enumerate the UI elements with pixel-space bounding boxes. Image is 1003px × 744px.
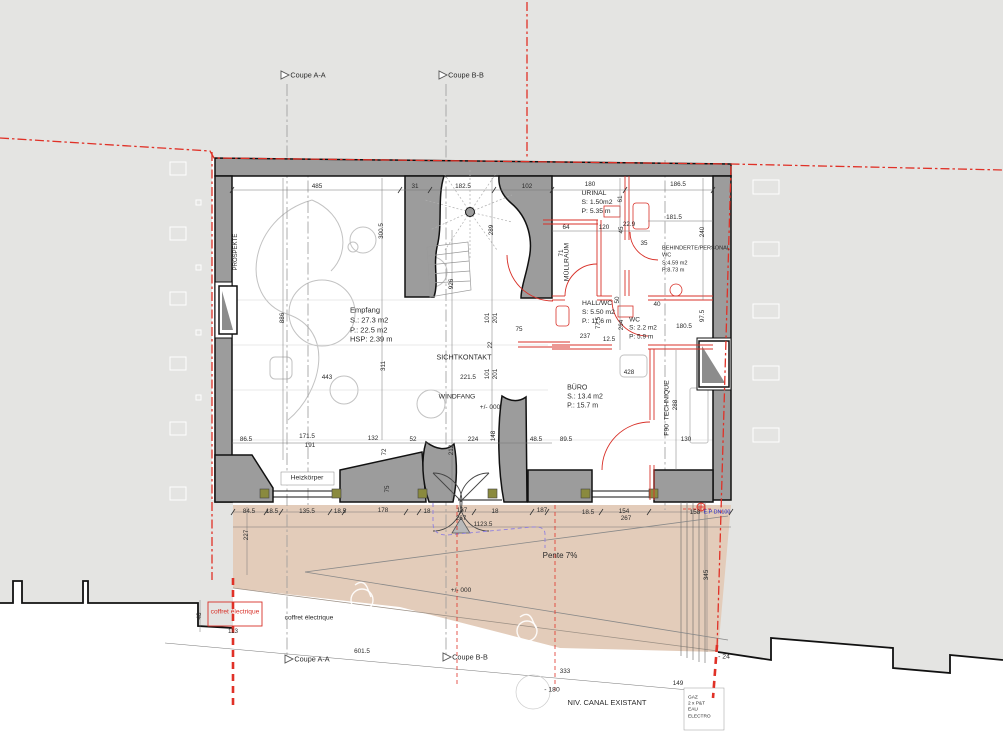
floor-plan-canvas: Empfang S.: 27.3 m2 P.: 22.5 m2 HSP: 2.3… [0, 0, 1003, 744]
dimension-label: 186.5 [670, 181, 686, 189]
dimension-label: 18 [491, 508, 498, 516]
dimension-label: 264 [618, 320, 626, 331]
dimension-label: 89.5 [560, 436, 572, 444]
dimension-label: 18.5 [334, 508, 346, 516]
dimension-label: 267 [621, 515, 632, 523]
dimension-label: 201 [492, 313, 500, 324]
dimension-label: 101 [484, 369, 492, 380]
label-level-entry: +/- 000 [480, 404, 500, 412]
dimension-label: 130 [681, 436, 692, 444]
dimension-label: 181.5 [666, 214, 682, 222]
dimension-label: 224 [468, 436, 479, 444]
dimension-label: 886 [279, 313, 287, 324]
label-pente: Pente 7% [543, 551, 578, 561]
label-heizkoerper: Heizkörper [291, 475, 324, 484]
dimension-label: 101 [484, 313, 492, 324]
dimension-label: 158 [690, 509, 701, 517]
dimension-label: 77.5 [595, 317, 603, 329]
dimension-label: 1123.5 [474, 521, 493, 529]
dimension-label: 18.5 [582, 509, 594, 517]
dimension-label: 154 [619, 508, 630, 516]
dimension-label: 71 [558, 249, 566, 256]
marker-coupe-aa-top: Coupe A-A [290, 70, 325, 79]
dimension-label: 84.5 [243, 508, 255, 516]
dimension-label: 180 [585, 181, 596, 189]
dimension-label: 61 [617, 195, 625, 202]
dimension-label: 72 [381, 448, 389, 455]
marker-coupe-bb-bottom: Coupe B-B [452, 652, 488, 661]
dimension-label: 135.5 [299, 508, 315, 516]
room-label-empfang: Empfang S.: 27.3 m2 P.: 22.5 m2 HSP: 2.3… [350, 306, 393, 345]
dimension-label: 187 [537, 507, 548, 515]
room-label-wc: WC S: 2.2 m2 P: 5.9 m [629, 316, 657, 341]
zone-label-windfang: WINDFANG [439, 394, 476, 403]
dimension-label: 18.5 [266, 508, 278, 516]
dimension-label: 97.5 [699, 310, 707, 322]
dimension-label: 237 [580, 333, 591, 341]
dimension-label: 240 [699, 227, 707, 238]
dimension-label: 113 [228, 628, 238, 636]
dimension-label: 22 [487, 341, 495, 348]
dimension-label: 443 [322, 374, 333, 382]
dimension-label: 191 [305, 442, 316, 450]
dimension-label: 311 [380, 361, 388, 371]
dimension-label: 75 [515, 326, 522, 334]
zone-label-prospekte: PROSPEKTE [233, 234, 241, 271]
dimension-label: 137 [457, 507, 468, 515]
label-minus-180: - 180 [544, 687, 560, 696]
zone-label-sichtkontakt: SICHTKONTAKT [437, 352, 492, 361]
dimension-label: 35 [640, 240, 647, 248]
label-coffret-black: coffret électrique [285, 615, 334, 624]
dimension-label: 345 [703, 570, 711, 581]
dimension-label: 212 [448, 445, 456, 456]
dimension-label: 86.5 [240, 436, 252, 444]
dimension-label: 180.5 [676, 323, 692, 331]
room-label-buero: BÜRO S.: 13.4 m2 P.: 15.7 m [567, 383, 603, 410]
label-utilities-stack: GAZ 2 x P&T EAU ELECTRO [688, 696, 711, 721]
dimension-label: 18 [423, 508, 430, 516]
dimension-label: 428 [624, 369, 635, 377]
dimension-label: 182.5 [455, 183, 471, 191]
dimension-label: 75 [384, 485, 392, 492]
dimension-label: 485 [312, 183, 323, 191]
dimension-label: 64 [562, 224, 569, 232]
dimension-label: 171.5 [299, 433, 315, 441]
room-label-f90-technique: F90 TECHNIQUE [664, 380, 673, 435]
dimension-label: 300.5 [378, 223, 386, 239]
room-label-urinal: URINAL S: 1.50m2 P: 5.35 m [582, 190, 613, 216]
dimension-label: 52 [409, 436, 416, 444]
dimension-label: 601.5 [354, 648, 370, 656]
label-minus-24: - 24 [718, 654, 730, 663]
dimension-label: 149 [673, 680, 684, 688]
dimension-label: 288 [672, 400, 680, 411]
dimension-label: 178 [378, 507, 389, 515]
dimension-label: 926 [448, 279, 456, 290]
label-ep-dn100: E.P DN100 [704, 509, 731, 516]
room-label-hall-wc: HALL/WC S: 5.50 m2 P.: 11.6 m [582, 300, 615, 326]
dimension-label: 48 [196, 612, 204, 619]
labels-layer: Empfang S.: 27.3 m2 P.: 22.5 m2 HSP: 2.3… [0, 0, 1003, 744]
room-label-muellraum: MÜLLRAUM [564, 243, 573, 281]
dimension-label: 22.9 [623, 221, 635, 229]
dimension-label: 40 [653, 301, 660, 309]
dimension-label: 102 [522, 183, 533, 191]
dimension-label: 50 [614, 296, 622, 303]
dimension-label: 12.5 [603, 336, 615, 344]
dimension-label: 45 [618, 226, 626, 233]
dimension-label: 201 [492, 369, 500, 380]
dimension-label: 148 [490, 431, 498, 442]
label-niv-canal: NIV. CANAL EXISTANT [568, 698, 647, 708]
dimension-label: 132 [368, 435, 379, 443]
room-label-behinderte-personal-wc: BEHINDERTE/PERSONAL WC S:4.59 m2 P:8.73 … [662, 245, 730, 274]
marker-coupe-bb-top: Coupe B-B [448, 70, 484, 79]
dimension-label: 227 [243, 530, 251, 541]
dimension-label: 333 [560, 668, 571, 676]
marker-coupe-aa-bottom: Coupe A-A [294, 654, 329, 663]
dimension-label: 221.5 [460, 374, 476, 382]
dimension-label: 31 [411, 183, 418, 191]
dimension-label: 48.5 [530, 436, 542, 444]
dimension-label: 120 [599, 224, 610, 232]
dimension-label: 289 [488, 225, 496, 236]
label-level-court: +/- 000 [451, 587, 471, 595]
label-coffret-red: coffret électrique [211, 609, 260, 618]
dimension-label: 267 [456, 515, 467, 523]
